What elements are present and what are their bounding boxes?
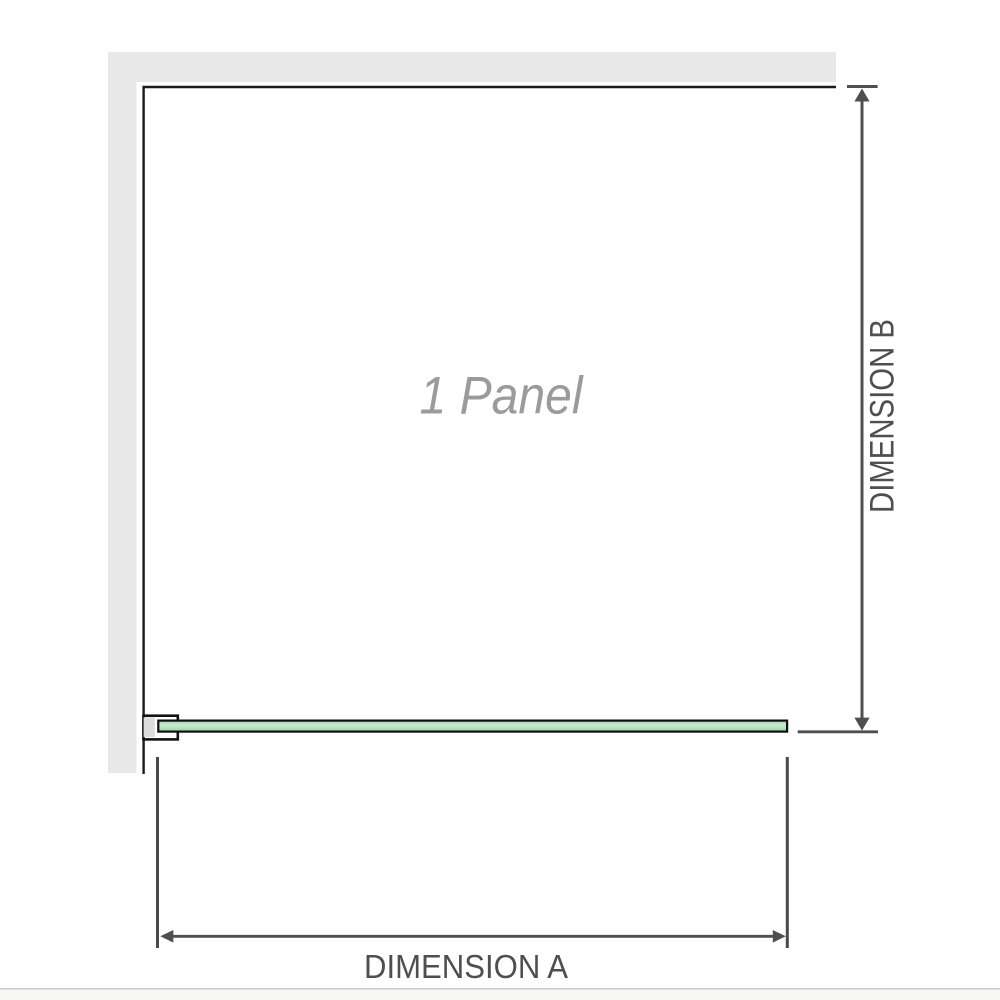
svg-text:DIMENSION B: DIMENSION B — [864, 319, 902, 513]
svg-text:DIMENSION A: DIMENSION A — [364, 948, 568, 985]
svg-text:1 Panel: 1 Panel — [420, 367, 584, 426]
